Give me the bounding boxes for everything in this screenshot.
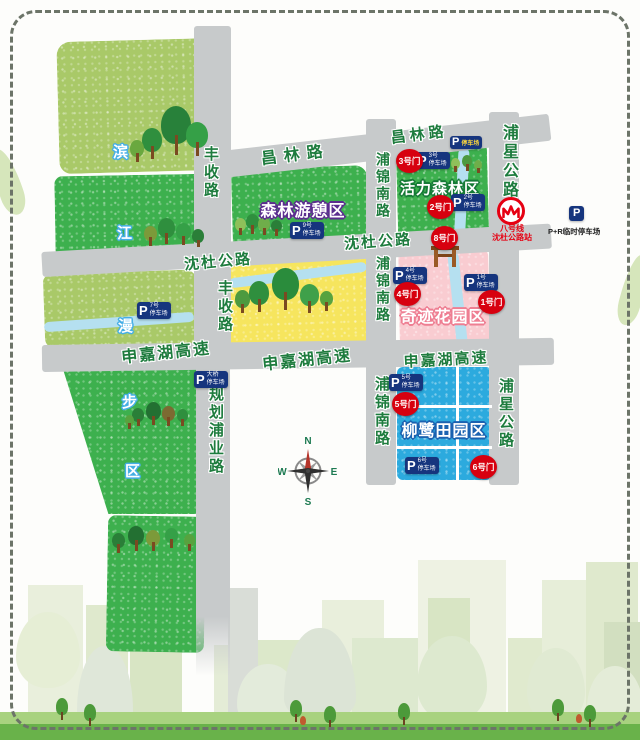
tree-trunk: [181, 419, 184, 426]
metro-station-label: 沈杜公路站: [482, 233, 542, 243]
tree-trunk: [263, 228, 266, 236]
gate-2-badge: 2号门: [427, 195, 454, 219]
parking-bridge-badge: P 大桥停车场: [194, 371, 228, 388]
tree-trunk: [128, 423, 131, 429]
tree-trunk: [137, 419, 140, 427]
zone-char-jiang: 江: [117, 222, 132, 243]
tree-trunk: [308, 301, 311, 313]
compass-w: W: [278, 467, 287, 478]
park-map: 丰收路 丰收路 昌林路 昌林路 沈杜公路 沈杜公路 申嘉湖高速 申嘉湖高速 申嘉…: [0, 0, 640, 740]
tree-trunk: [477, 168, 480, 174]
tree-trunk: [152, 416, 155, 426]
tree-trunk: [241, 304, 244, 314]
compass-e: E: [331, 467, 338, 478]
tree-trunk: [188, 544, 191, 551]
tree-trunk: [197, 240, 200, 248]
parking-lot-9-badge: P 9号停车场: [290, 222, 324, 239]
zone-char-qu: 区: [125, 460, 140, 481]
tree-trunk: [466, 164, 469, 171]
zone-label-willow-field: 柳鹭田园区: [401, 417, 486, 441]
parking-icon: P: [196, 373, 205, 386]
metro-logo-icon: [497, 197, 525, 225]
tree-trunk: [182, 236, 185, 245]
parking-lot-6-badge: P 6号停车场: [405, 457, 439, 474]
tree-trunk: [170, 539, 173, 547]
parking-icon: P: [453, 196, 462, 209]
road-label-puxing-2: 浦星公路: [495, 378, 516, 450]
compass-rose: N S W E: [278, 434, 338, 506]
tree-trunk: [165, 233, 168, 244]
zone-label-forest-leisure: 森林游憩区: [260, 197, 345, 221]
tree-trunk: [117, 544, 120, 552]
road-label-guihua-puye: 规划浦业路: [205, 386, 226, 476]
gate-8-badge: 8号门: [431, 226, 458, 250]
parking-icon: P: [292, 224, 301, 237]
parking-lot-1-badge: P 1号停车场: [464, 274, 498, 291]
gate-3-badge: 3号门: [396, 149, 423, 173]
tree-trunk: [325, 302, 328, 310]
field-grid-line: [397, 446, 492, 449]
tree-decor: [0, 0, 640, 740]
parking-icon: P: [452, 137, 459, 148]
tree-trunk: [239, 228, 242, 235]
tree-trunk: [454, 166, 457, 172]
tree-trunk: [152, 542, 155, 551]
tree-trunk: [167, 417, 170, 425]
parking-roadside-badge: P 停车场: [450, 136, 482, 149]
park-and-ride-icon: P: [569, 206, 584, 221]
gate-1-badge: 1号门: [478, 290, 505, 314]
parking-lot-5-badge: P 5号停车场: [389, 374, 423, 391]
parking-icon: P: [407, 459, 416, 472]
parking-icon: P: [395, 269, 404, 282]
compass-n: N: [304, 436, 311, 447]
zone-char-man: 漫: [118, 315, 133, 336]
road-label-fengshou-2: 丰收路: [214, 280, 235, 334]
road-label-fengshou-1: 丰收路: [200, 146, 221, 200]
road-label-puxing-1: 浦星公路: [496, 124, 520, 200]
parking-icon: P: [139, 304, 148, 317]
tree-trunk: [196, 142, 199, 156]
tree-trunk: [135, 540, 138, 550]
tree-trunk: [151, 146, 154, 159]
tree-trunk: [136, 153, 139, 162]
zone-label-miracle-garden: 奇迹花园区: [400, 303, 485, 327]
gate-5-badge: 5号门: [392, 392, 419, 416]
parking-lot-7-badge: P 7号停车场: [137, 302, 171, 319]
parking-lot-2-badge: P 2号停车场: [451, 194, 485, 211]
tree-trunk: [258, 299, 261, 312]
tree-trunk: [284, 292, 287, 310]
parking-icon: P: [391, 376, 400, 389]
compass-s: S: [305, 497, 312, 506]
gate-6-badge: 6号门: [470, 455, 497, 479]
gate-4-badge: 4号门: [394, 282, 421, 306]
road-label-pujin-south-2: 浦锦南路: [373, 256, 393, 324]
road-label-pujin-south-1: 浦锦南路: [373, 152, 393, 220]
park-and-ride-label: P+R临时停车场: [548, 226, 600, 237]
zone-char-bin: 滨: [113, 141, 128, 162]
parking-icon: P: [466, 276, 475, 289]
tree-trunk: [175, 135, 178, 156]
road-label-shenjiahu-3: 申嘉湖高速: [403, 346, 489, 371]
tree-trunk: [251, 225, 254, 233]
tree-trunk: [149, 237, 152, 245]
tree-trunk: [275, 229, 278, 236]
zone-char-bu: 步: [122, 391, 137, 412]
parking-icon: P: [573, 208, 580, 219]
